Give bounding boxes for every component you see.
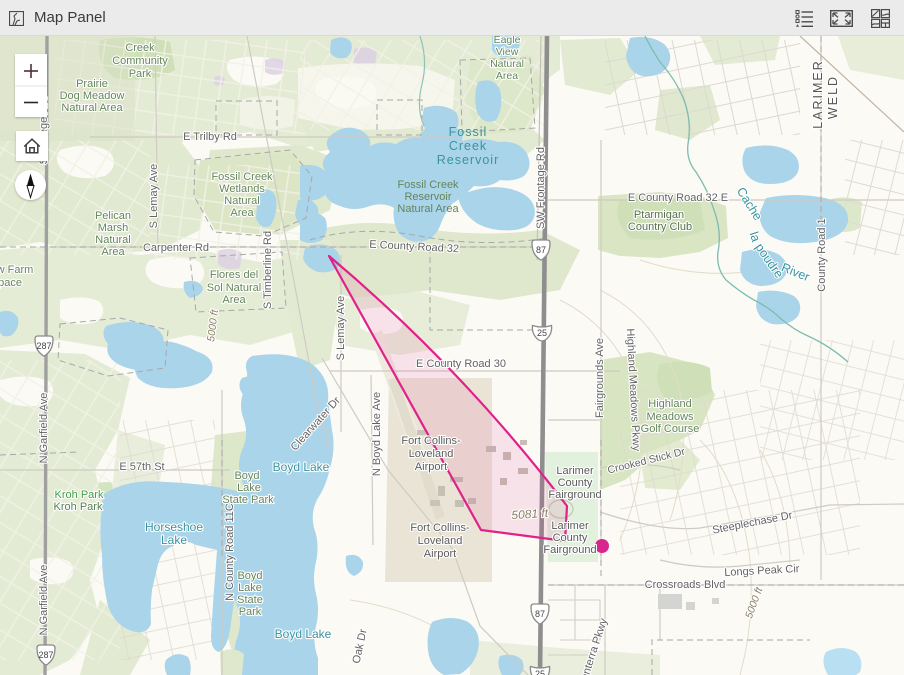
svg-text:Kroh Park: Kroh Park <box>54 501 103 513</box>
svg-text:Country Club: Country Club <box>628 221 692 233</box>
svg-text:Prairie: Prairie <box>76 78 108 90</box>
svg-text:County Road 1: County Road 1 <box>816 218 828 291</box>
svg-text:Loveland: Loveland <box>409 448 454 460</box>
svg-text:Natural Area: Natural Area <box>397 203 459 215</box>
svg-text:E County Road 32 E: E County Road 32 E <box>628 192 728 204</box>
svg-text:County: County <box>558 477 593 489</box>
svg-text:87: 87 <box>535 609 545 619</box>
svg-text:S Lemay Ave: S Lemay Ave <box>148 164 160 229</box>
svg-text:Park: Park <box>129 68 152 80</box>
svg-text:Area: Area <box>101 246 125 258</box>
svg-text:LARIMER: LARIMER <box>811 59 825 129</box>
svg-text:Boyd Lake: Boyd Lake <box>275 627 332 641</box>
svg-text:Fossil: Fossil <box>449 125 488 139</box>
svg-text:5081 ft: 5081 ft <box>511 506 549 523</box>
svg-text:S Lemay Ave: S Lemay Ave <box>335 296 347 361</box>
svg-text:25: 25 <box>535 669 545 675</box>
svg-text:View: View <box>496 46 519 58</box>
svg-text:Crossroads Blvd: Crossroads Blvd <box>645 579 726 591</box>
svg-text:Park: Park <box>239 606 262 618</box>
svg-text:Reservoir: Reservoir <box>437 153 500 167</box>
svg-text:E 57th St: E 57th St <box>119 461 164 473</box>
svg-text:Boyd: Boyd <box>237 570 262 582</box>
svg-text:Golf Course: Golf Course <box>641 423 700 435</box>
svg-text:E County Road 30: E County Road 30 <box>416 358 506 370</box>
svg-text:Fossil Creek: Fossil Creek <box>397 179 459 191</box>
svg-text:287: 287 <box>38 650 53 660</box>
svg-text:Area: Area <box>230 207 254 219</box>
svg-text:N County Road 11C: N County Road 11C <box>224 503 236 601</box>
svg-text:Boyd Lake: Boyd Lake <box>273 460 330 474</box>
svg-text:SW Frontage Rd: SW Frontage Rd <box>535 147 547 229</box>
svg-text:State Park: State Park <box>222 494 274 506</box>
svg-text:Loveland: Loveland <box>418 535 463 547</box>
svg-text:Airport: Airport <box>415 461 447 473</box>
svg-text:Carpenter Rd: Carpenter Rd <box>143 242 209 254</box>
svg-text:State: State <box>237 594 263 606</box>
svg-text:pace: pace <box>0 277 22 289</box>
svg-text:Marsh: Marsh <box>98 222 129 234</box>
svg-text:Boyd: Boyd <box>234 470 259 482</box>
svg-text:Wetlands: Wetlands <box>219 183 265 195</box>
svg-text:Larimer: Larimer <box>556 465 594 477</box>
svg-text:Highland: Highland <box>648 398 691 410</box>
svg-text:Creek: Creek <box>125 42 155 54</box>
svg-text:Area: Area <box>496 70 518 82</box>
svg-text:Eagle: Eagle <box>494 36 521 46</box>
svg-text:287: 287 <box>36 341 51 351</box>
svg-text:Fort Collins-: Fort Collins- <box>401 435 461 447</box>
svg-text:25: 25 <box>537 328 547 338</box>
svg-text:Community: Community <box>112 55 168 67</box>
svg-text:Fairgrounds Ave: Fairgrounds Ave <box>594 338 606 418</box>
svg-text:Fairground: Fairground <box>543 544 596 556</box>
svg-text:Natural: Natural <box>224 195 259 207</box>
svg-text:Area: Area <box>222 294 246 306</box>
svg-text:N Garfield Ave: N Garfield Ave <box>38 393 50 464</box>
svg-text:Creek: Creek <box>449 139 487 153</box>
svg-text:Airport: Airport <box>424 548 456 560</box>
svg-text:WELD: WELD <box>826 75 840 119</box>
svg-text:County: County <box>553 532 588 544</box>
svg-text:Lake: Lake <box>238 582 262 594</box>
svg-text:Fairground: Fairground <box>548 489 601 501</box>
svg-text:Lake: Lake <box>161 533 187 547</box>
svg-text:Natural Area: Natural Area <box>61 102 123 114</box>
svg-text:Kroh Park: Kroh Park <box>55 489 104 501</box>
svg-text:Lake: Lake <box>237 482 261 494</box>
svg-text:N Boyd Lake Ave: N Boyd Lake Ave <box>371 392 383 476</box>
svg-text:Natural: Natural <box>490 58 524 70</box>
svg-text:N Garfield Ave: N Garfield Ave <box>38 565 50 636</box>
svg-text:Horseshoe: Horseshoe <box>145 520 203 534</box>
svg-text:E Trilby Rd: E Trilby Rd <box>183 131 237 143</box>
svg-text:87: 87 <box>536 245 546 255</box>
svg-text:Sol Natural: Sol Natural <box>207 282 261 294</box>
svg-text:Meadows: Meadows <box>646 411 694 423</box>
svg-text:Flores del: Flores del <box>210 269 258 281</box>
svg-text:Larimer: Larimer <box>551 520 589 532</box>
svg-text:Fossil Creek: Fossil Creek <box>211 171 273 183</box>
svg-text:w Farm: w Farm <box>0 264 33 276</box>
svg-text:Ptarmigan: Ptarmigan <box>634 209 684 221</box>
svg-text:Dog Meadow: Dog Meadow <box>60 90 125 102</box>
svg-text:Fort Collins-: Fort Collins- <box>410 522 470 534</box>
svg-text:S Timberline Rd: S Timberline Rd <box>262 231 274 309</box>
svg-text:Natural: Natural <box>95 234 130 246</box>
svg-text:Pelican: Pelican <box>95 210 131 222</box>
svg-text:Reservoir: Reservoir <box>404 191 451 203</box>
